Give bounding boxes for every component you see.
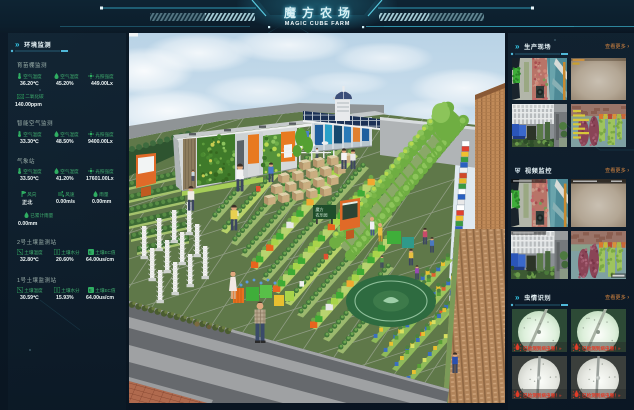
svg-text:»: » bbox=[618, 346, 621, 351]
svg-text:已检测到病虫害！: 已检测到病虫害！ bbox=[523, 392, 560, 399]
svg-text:E: E bbox=[89, 250, 92, 255]
svg-text:»: » bbox=[559, 393, 562, 398]
svg-text:已检测到病虫害！: 已检测到病虫害！ bbox=[582, 392, 619, 399]
svg-text:农乐园: 农乐园 bbox=[316, 212, 328, 218]
svg-text:CO: CO bbox=[18, 95, 23, 99]
svg-text:已检测到病虫害！: 已检测到病虫害！ bbox=[582, 345, 619, 352]
svg-text:魔方: 魔方 bbox=[316, 206, 324, 212]
svg-text:已检测到病虫害！: 已检测到病虫害！ bbox=[523, 345, 560, 352]
svg-text:»: » bbox=[559, 346, 562, 351]
svg-text:E: E bbox=[89, 288, 92, 293]
svg-text:»: » bbox=[618, 393, 621, 398]
